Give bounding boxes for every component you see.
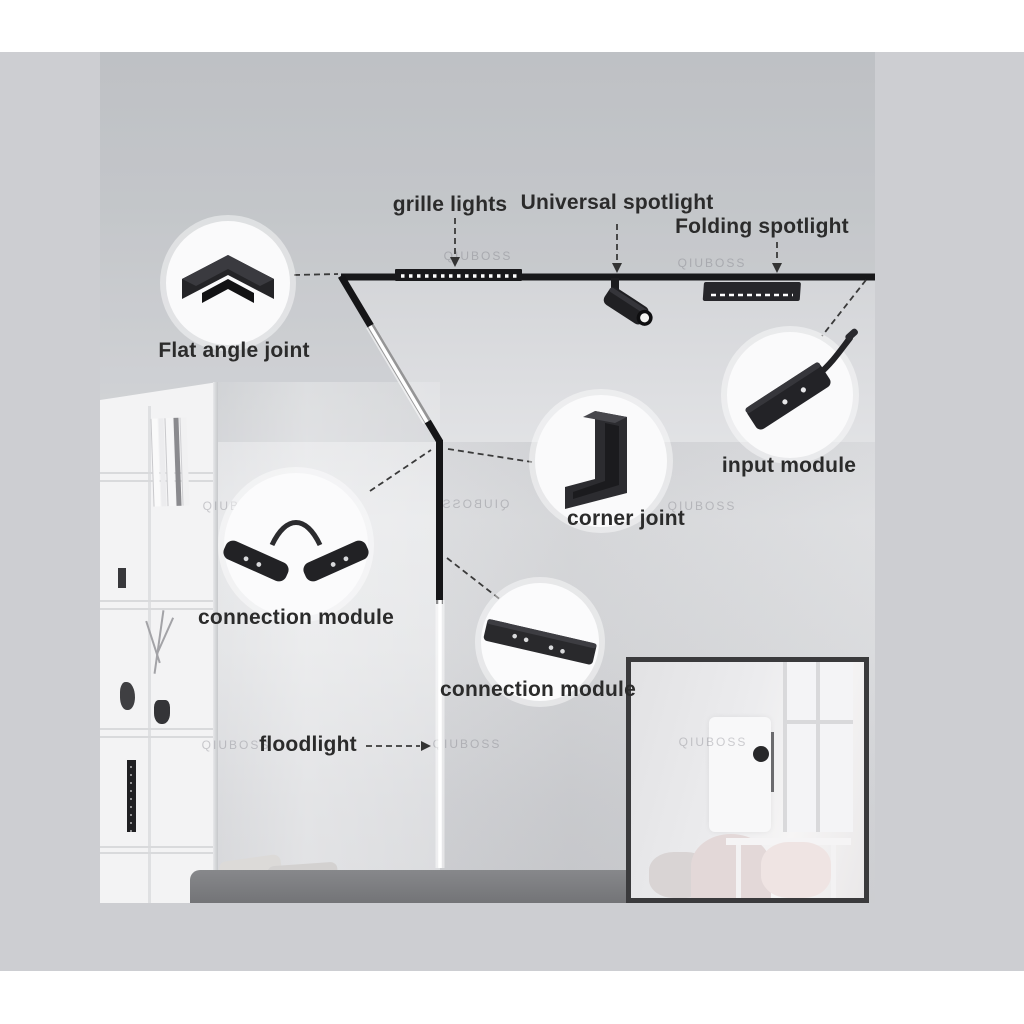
connector-connection-module-a [370,450,431,491]
label-corner-joint: corner joint [567,507,685,531]
label-connection-module-a: connection module [198,606,394,630]
led-strip-angled [370,326,427,422]
connector-corner-joint [448,449,532,462]
label-input-module: input module [722,454,856,478]
connector-input-module [822,280,866,336]
cylinder-spotlight-icon [601,278,656,331]
arrow-right-icon [421,741,431,751]
label-flat-angle-joint: Flat angle joint [158,339,309,363]
label-folding-spotlight: Folding spotlight [675,215,849,239]
room-scene: QIUBOSS QIUBOSS QIUBOSS QIUBOSS QIUBOSS … [100,52,875,903]
arrow-down-icon [450,257,460,267]
arrow-down-icon [612,263,622,273]
label-grille-lights: grille lights [393,193,508,217]
grille-light-bar-icon [395,269,522,281]
folding-panel-icon [703,282,801,301]
connector-flat-angle-joint [294,274,338,275]
label-floodlight: floodlight [259,733,357,757]
label-universal-spotlight: Universal spotlight [521,191,714,215]
label-connection-module-b: connection module [440,678,636,702]
arrow-down-icon [772,263,782,273]
